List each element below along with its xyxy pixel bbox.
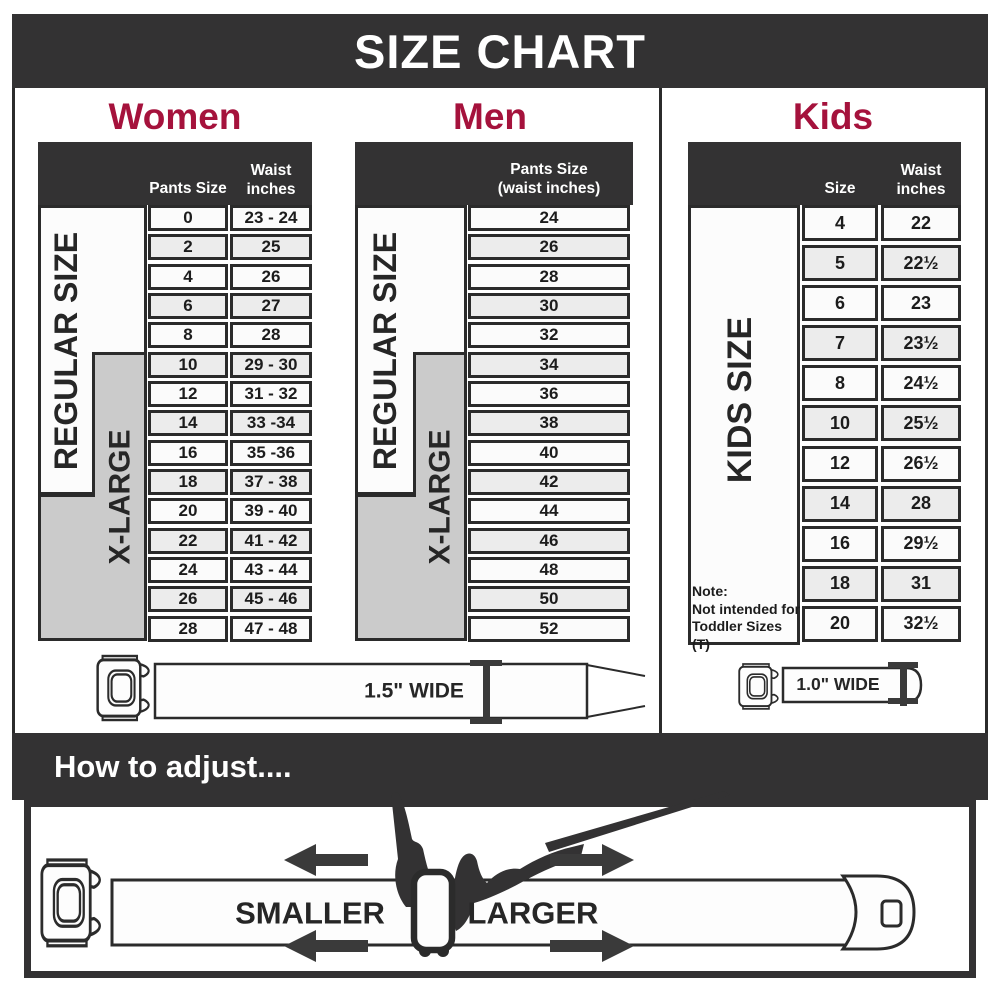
arrow-left-icon <box>284 844 368 876</box>
kids-waist-cell: 25½ <box>881 405 961 441</box>
women-pants-size-cell: 10 <box>148 352 228 378</box>
women-waist-cell: 27 <box>230 293 312 319</box>
kids-header-size: Size <box>802 180 878 199</box>
women-waist-column: 23 - 242526272829 - 3031 - 3233 -3435 -3… <box>230 205 312 642</box>
kids-size-cell: 16 <box>802 526 878 562</box>
men-size-cell: 36 <box>468 381 630 407</box>
women-waist-cell: 31 - 32 <box>230 381 312 407</box>
women-waist-cell: 45 - 46 <box>230 586 312 612</box>
kids-header-waist: Waist inches <box>881 162 961 200</box>
men-size-cell: 30 <box>468 293 630 319</box>
women-waist-cell: 23 - 24 <box>230 205 312 231</box>
size-chart-infographic: SIZE CHART Women Men Kids Pants Size Wai… <box>0 0 1000 1000</box>
pulled-strap-line <box>545 791 730 852</box>
women-pants-size-cell: 6 <box>148 293 228 319</box>
women-waist-cell: 26 <box>230 264 312 290</box>
kids-size-cell: 12 <box>802 446 878 482</box>
kids-size-column: 45678101214161820 <box>802 205 878 642</box>
women-header-pants-size: Pants Size <box>148 180 228 199</box>
women-pants-size-cell: 18 <box>148 469 228 495</box>
frame-right-border <box>985 88 988 733</box>
men-size-cell: 48 <box>468 557 630 583</box>
women-waist-cell: 37 - 38 <box>230 469 312 495</box>
women-table-header: Pants Size Waist inches <box>38 142 312 205</box>
women-waist-cell: 29 - 30 <box>230 352 312 378</box>
kids-waist-cell: 22½ <box>881 245 961 281</box>
kids-title: Kids <box>733 96 933 138</box>
men-size-region-graphic: REGULAR SIZE X-LARGE <box>355 205 467 641</box>
kids-waist-cell: 23½ <box>881 325 961 361</box>
kids-table-header: Size Waist inches <box>688 142 961 205</box>
arrow-right-icon <box>550 844 634 876</box>
kids-waist-cell: 28 <box>881 486 961 522</box>
men-size-cell: 34 <box>468 352 630 378</box>
kids-size-cell: 14 <box>802 486 878 522</box>
smaller-label: SMALLER <box>235 896 385 931</box>
women-pants-size-cell: 22 <box>148 528 228 554</box>
women-pants-size-cell: 8 <box>148 322 228 348</box>
kids-size-cell: 4 <box>802 205 878 241</box>
kids-size-cell: 18 <box>802 566 878 602</box>
men-size-column: 242628303234363840424446485052 <box>468 205 630 642</box>
women-pants-size-cell: 4 <box>148 264 228 290</box>
women-waist-cell: 41 - 42 <box>230 528 312 554</box>
kids-waist-cell: 22 <box>881 205 961 241</box>
men-size-cell: 52 <box>468 616 630 642</box>
seatbelt-buckle-icon <box>739 664 778 709</box>
adult-belt-width-label: 1.5" WIDE <box>364 680 464 703</box>
women-pants-size-cell: 12 <box>148 381 228 407</box>
women-pants-size-cell: 26 <box>148 586 228 612</box>
seatbelt-buckle-icon <box>42 860 100 946</box>
women-waist-cell: 28 <box>230 322 312 348</box>
kids-belt-illustration: 1.0" WIDE <box>730 655 945 720</box>
women-regular-size-label: REGULAR SIZE <box>48 232 84 470</box>
men-size-cell: 46 <box>468 528 630 554</box>
men-size-cell: 40 <box>468 440 630 466</box>
women-pants-size-cell: 0 <box>148 205 228 231</box>
kids-waist-cell: 26½ <box>881 446 961 482</box>
kids-size-cell: 7 <box>802 325 878 361</box>
men-size-cell: 44 <box>468 498 630 524</box>
adjust-illustration: SMALLER LARGER <box>24 755 976 978</box>
belt-slider-adjuster <box>414 872 452 957</box>
women-pants-size-cell: 14 <box>148 410 228 436</box>
men-header-pants-size: Pants Size (waist inches) <box>468 161 630 199</box>
men-size-cell: 42 <box>468 469 630 495</box>
adult-belt-illustration: 1.5" WIDE <box>85 650 650 730</box>
men-size-cell: 38 <box>468 410 630 436</box>
women-pants-size-column: 0246810121416182022242628 <box>148 205 228 642</box>
women-waist-cell: 35 -36 <box>230 440 312 466</box>
frame-divider <box>659 88 662 733</box>
women-pants-size-cell: 28 <box>148 616 228 642</box>
women-pants-size-cell: 16 <box>148 440 228 466</box>
women-pants-size-cell: 24 <box>148 557 228 583</box>
men-size-cell: 28 <box>468 264 630 290</box>
belt-end-slot <box>882 901 901 926</box>
seatbelt-buckle-icon <box>98 656 149 720</box>
kids-size-region-graphic: KIDS SIZE <box>688 205 800 645</box>
page-title: SIZE CHART <box>354 24 646 79</box>
women-xlarge-label: X-LARGE <box>104 430 137 565</box>
women-waist-cell: 39 - 40 <box>230 498 312 524</box>
men-table-header: Pants Size (waist inches) <box>355 142 633 205</box>
women-waist-cell: 47 - 48 <box>230 616 312 642</box>
belt-strap-tail <box>587 665 645 717</box>
larger-label: LARGER <box>468 896 599 931</box>
kids-waist-cell: 23 <box>881 285 961 321</box>
kids-size-label: KIDS SIZE <box>721 317 759 483</box>
kids-waist-cell: 31 <box>881 566 961 602</box>
kids-size-cell: 8 <box>802 365 878 401</box>
men-title: Men <box>390 96 590 138</box>
frame-left-border <box>12 88 15 733</box>
women-waist-cell: 43 - 44 <box>230 557 312 583</box>
men-xlarge-label: X-LARGE <box>424 430 457 565</box>
women-title: Women <box>75 96 275 138</box>
women-header-waist: Waist inches <box>230 162 312 200</box>
kids-waist-cell: 32½ <box>881 606 961 642</box>
kids-size-cell: 20 <box>802 606 878 642</box>
men-regular-size-label: REGULAR SIZE <box>367 232 403 470</box>
men-size-cell: 26 <box>468 234 630 260</box>
men-size-cell: 50 <box>468 586 630 612</box>
kids-waist-cell: 29½ <box>881 526 961 562</box>
women-waist-cell: 25 <box>230 234 312 260</box>
women-pants-size-cell: 2 <box>148 234 228 260</box>
kids-waist-column: 2222½2323½24½25½26½2829½3132½ <box>881 205 961 642</box>
men-size-cell: 24 <box>468 205 630 231</box>
title-bar: SIZE CHART <box>12 14 988 88</box>
kids-size-cell: 10 <box>802 405 878 441</box>
women-waist-cell: 33 -34 <box>230 410 312 436</box>
kids-belt-width-label: 1.0" WIDE <box>796 674 879 694</box>
women-size-region-graphic: REGULAR SIZE X-LARGE <box>38 205 147 641</box>
kids-size-cell: 5 <box>802 245 878 281</box>
men-size-cell: 32 <box>468 322 630 348</box>
kids-note: Note: Not intended for Toddler Sizes (T) <box>692 583 802 653</box>
kids-size-cell: 6 <box>802 285 878 321</box>
kids-waist-cell: 24½ <box>881 365 961 401</box>
women-pants-size-cell: 20 <box>148 498 228 524</box>
